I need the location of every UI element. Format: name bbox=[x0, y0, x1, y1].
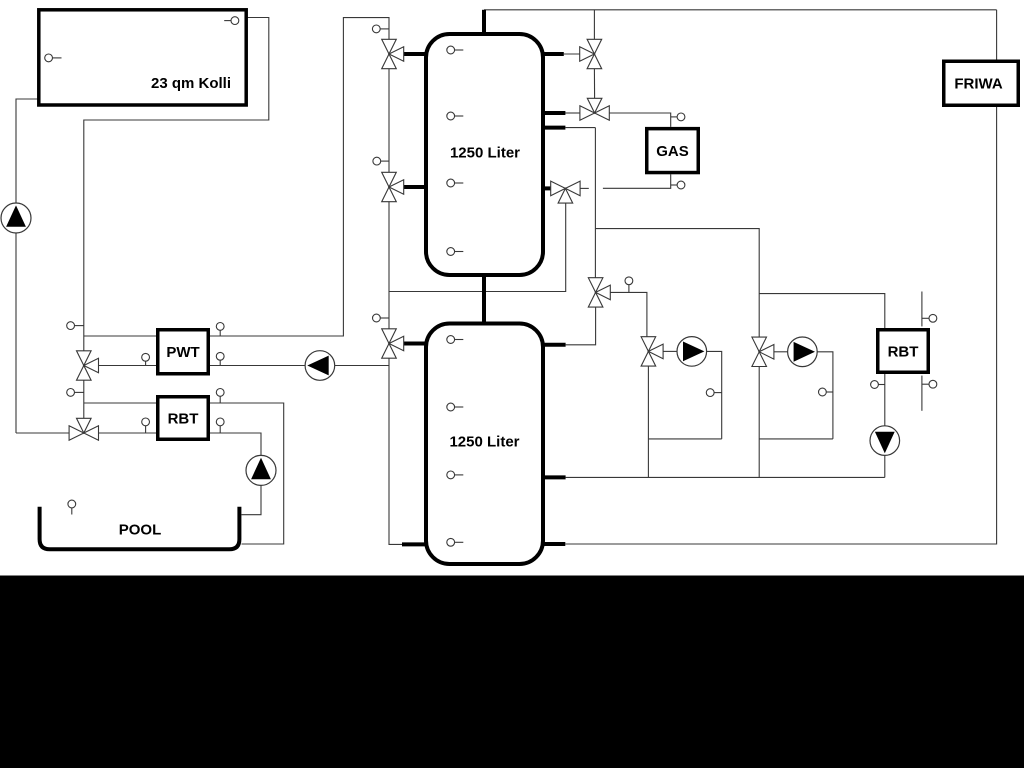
svg-text:1250 Liter: 1250 Liter bbox=[449, 434, 519, 451]
svg-text:GAS: GAS bbox=[656, 143, 689, 160]
svg-text:RBT: RBT bbox=[168, 410, 199, 427]
svg-text:FRIWA: FRIWA bbox=[954, 76, 1002, 93]
svg-text:POOL: POOL bbox=[119, 521, 162, 538]
svg-text:1250 Liter: 1250 Liter bbox=[450, 144, 520, 161]
svg-text:23 qm Kolli: 23 qm Kolli bbox=[151, 75, 231, 92]
svg-text:PWT: PWT bbox=[166, 344, 199, 361]
svg-text:RBT: RBT bbox=[888, 343, 919, 360]
